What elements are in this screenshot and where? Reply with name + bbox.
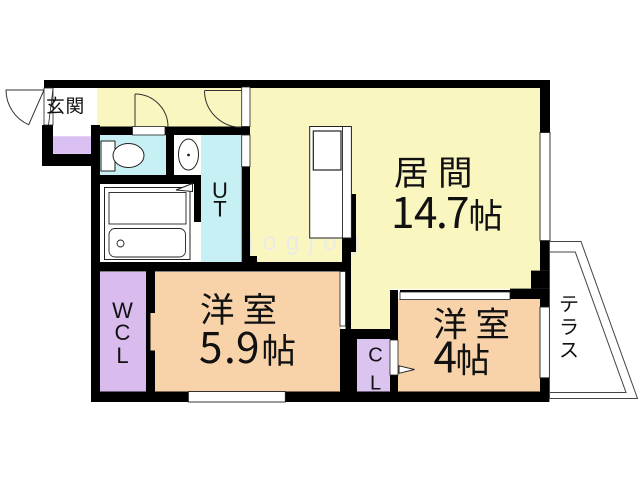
svg-text:C: C (368, 345, 382, 367)
svg-text:L: L (370, 373, 381, 395)
svg-text:T: T (213, 197, 226, 222)
svg-text:L: L (116, 343, 128, 368)
svg-text:C: C (115, 320, 131, 345)
